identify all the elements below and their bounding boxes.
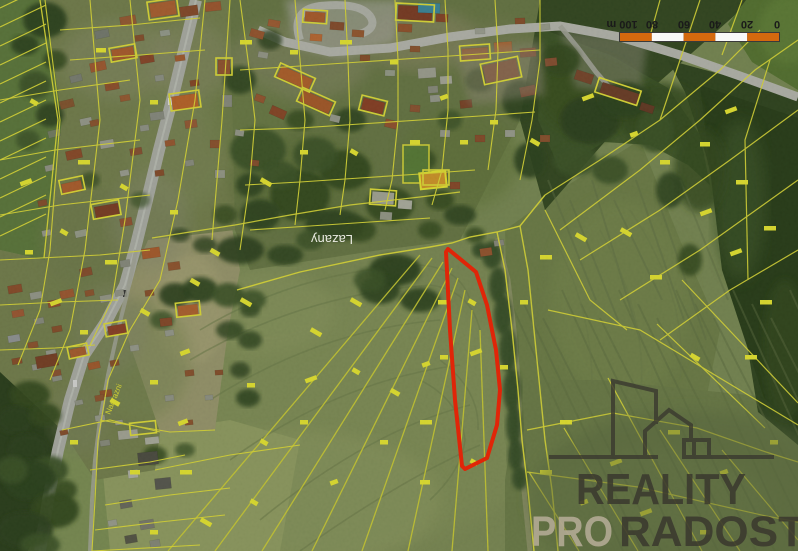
- svg-text:20: 20: [741, 18, 753, 30]
- svg-text:0: 0: [774, 18, 780, 30]
- svg-text:60: 60: [678, 18, 690, 30]
- svg-text:100 m: 100 m: [606, 18, 637, 30]
- svg-text:Lazany: Lazany: [311, 232, 353, 247]
- svg-text:REALITY: REALITY: [576, 465, 746, 514]
- svg-text:40: 40: [709, 18, 721, 30]
- svg-text:80: 80: [646, 18, 658, 30]
- svg-text:RADOST: RADOST: [619, 508, 798, 551]
- svg-text:PRO: PRO: [531, 508, 613, 551]
